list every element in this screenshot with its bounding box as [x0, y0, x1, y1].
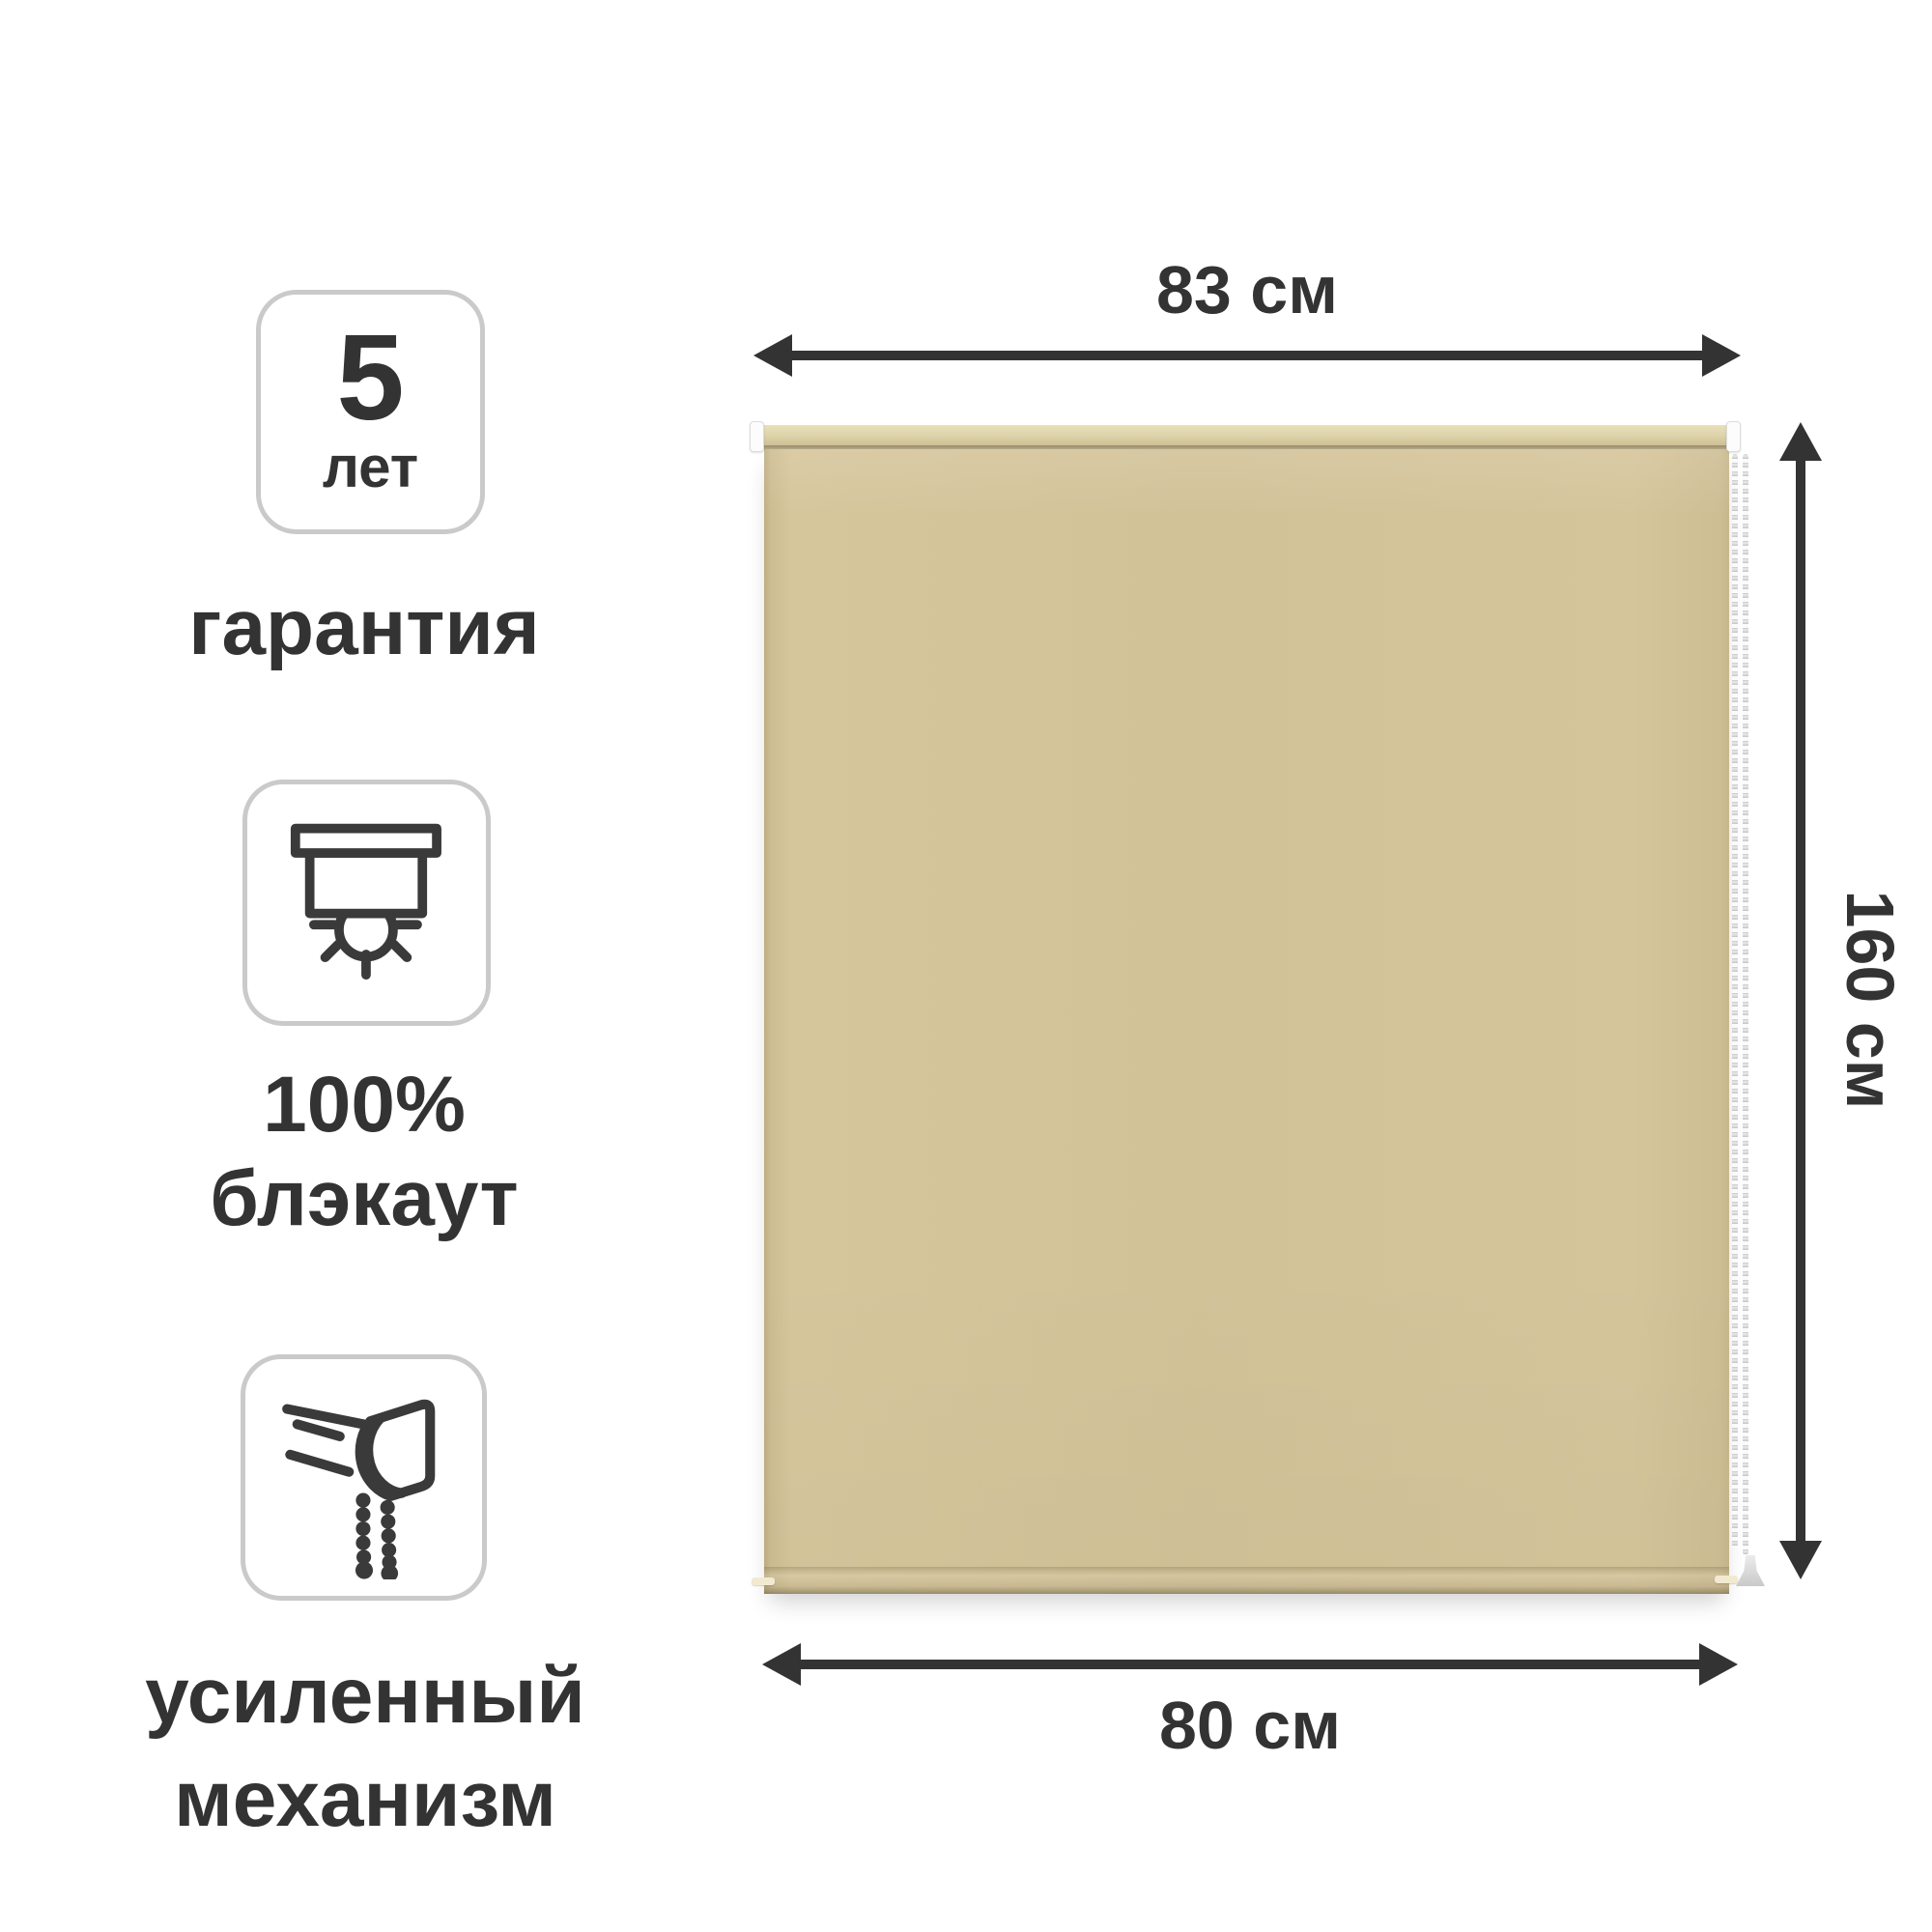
blackout-label-line1: 100%: [123, 1059, 606, 1152]
warranty-label: гарантия: [123, 582, 606, 675]
blind-bottom-bar-pin-left: [752, 1577, 775, 1585]
blind-bottom-bar-pin-right: [1715, 1576, 1738, 1583]
mechanism-label-line1: усиленный: [99, 1645, 632, 1748]
blackout-label: 100% блэкаут: [123, 1059, 606, 1246]
blackout-label-line2: блэкаут: [123, 1152, 606, 1246]
blind-tube-shadow: [764, 445, 1729, 449]
blind-bracket-left: [750, 421, 764, 452]
blind-fabric-panel: [764, 448, 1729, 1594]
warranty-badge: 5 лет: [256, 290, 485, 534]
blind-bracket-right: [1726, 421, 1741, 452]
mechanism-label: усиленный механизм: [99, 1645, 632, 1851]
blackout-blind-sun-icon: [265, 801, 469, 1006]
width-bottom-arrow: [762, 1641, 1738, 1688]
warranty-years-unit: лет: [323, 439, 418, 497]
height-side-label: 160 см: [1835, 855, 1905, 1145]
blind-chain-connector: [1736, 1555, 1765, 1586]
blind-bead-chain-strand: [1743, 454, 1748, 1555]
blackout-badge: [242, 780, 491, 1026]
roller-mechanism-chain-icon: [263, 1377, 466, 1579]
warranty-years-value: 5: [336, 327, 404, 427]
height-side-arrow: [1778, 422, 1823, 1579]
width-top-arrow: [753, 332, 1741, 379]
product-dimension-diagram: 5 лет гарантия 100% блэкаут: [0, 0, 1932, 1932]
blind-bead-chain-strand: [1732, 454, 1738, 1548]
mechanism-label-line2: механизм: [99, 1748, 632, 1852]
mechanism-badge: [241, 1354, 487, 1601]
width-bottom-label: 80 см: [762, 1685, 1738, 1766]
width-top-label: 83 см: [753, 249, 1741, 330]
